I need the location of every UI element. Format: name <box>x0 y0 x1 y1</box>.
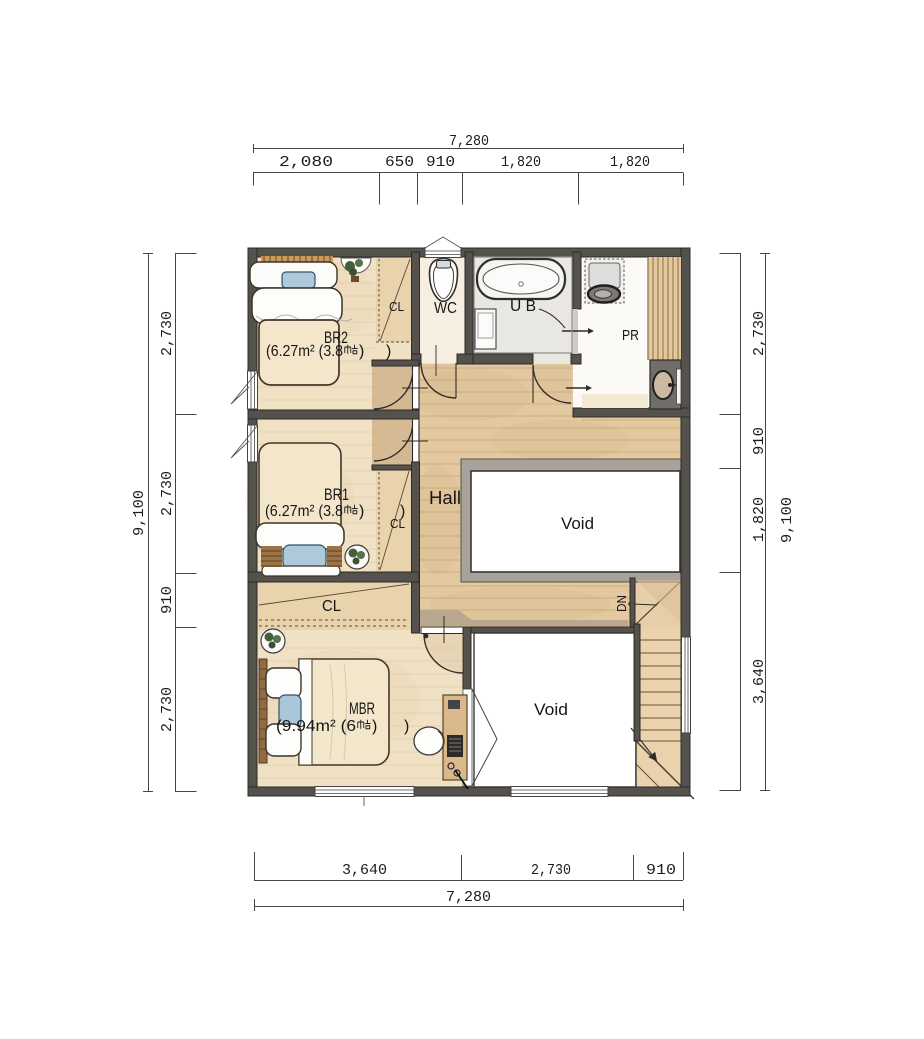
svg-text:PR: PR <box>622 327 639 344</box>
svg-text:(6.27m² (3.8: (6.27m² (3.8 <box>266 343 343 360</box>
svg-text:650: 650 <box>385 154 414 171</box>
svg-text:2,730: 2,730 <box>159 311 176 356</box>
svg-text:1,820: 1,820 <box>610 154 650 171</box>
svg-text:): ) <box>386 343 391 360</box>
svg-text:Void: Void <box>534 700 568 719</box>
svg-text:910: 910 <box>646 862 676 879</box>
svg-text:Hall: Hall <box>429 488 461 508</box>
svg-text:): ) <box>404 718 409 735</box>
svg-text:1,820: 1,820 <box>751 497 768 542</box>
svg-text:3,640: 3,640 <box>751 659 768 704</box>
svg-text:910: 910 <box>751 427 768 455</box>
svg-text:910: 910 <box>426 154 455 171</box>
svg-text:3,640: 3,640 <box>342 862 387 879</box>
svg-text:910: 910 <box>159 586 176 614</box>
svg-text:9,100: 9,100 <box>131 490 148 536</box>
svg-text:): ) <box>372 718 377 735</box>
svg-text:7,280: 7,280 <box>446 889 491 906</box>
svg-text:(9.94m² (6: (9.94m² (6 <box>276 718 356 735</box>
svg-text:2,730: 2,730 <box>751 311 768 356</box>
svg-text:2,730: 2,730 <box>159 687 176 732</box>
svg-text:2,730: 2,730 <box>159 471 176 516</box>
svg-text:Void: Void <box>561 514 594 533</box>
svg-text:2,730: 2,730 <box>531 862 571 879</box>
svg-text:7,280: 7,280 <box>449 133 489 150</box>
svg-text:CL: CL <box>389 299 404 314</box>
svg-text:WC: WC <box>434 300 457 317</box>
svg-text:MBR: MBR <box>349 699 375 718</box>
svg-text:): ) <box>359 343 364 360</box>
svg-text:(6.27m² (3.8: (6.27m² (3.8 <box>265 503 343 520</box>
svg-text:): ) <box>359 503 364 520</box>
svg-text:BR1: BR1 <box>324 485 349 504</box>
svg-text:2,080: 2,080 <box>279 154 333 171</box>
svg-text:U B: U B <box>510 298 536 315</box>
svg-text:DN: DN <box>614 595 629 612</box>
svg-text:CL: CL <box>390 516 405 531</box>
svg-text:CL: CL <box>322 598 341 615</box>
svg-text:1,820: 1,820 <box>501 154 541 171</box>
svg-text:9,100: 9,100 <box>779 497 796 543</box>
